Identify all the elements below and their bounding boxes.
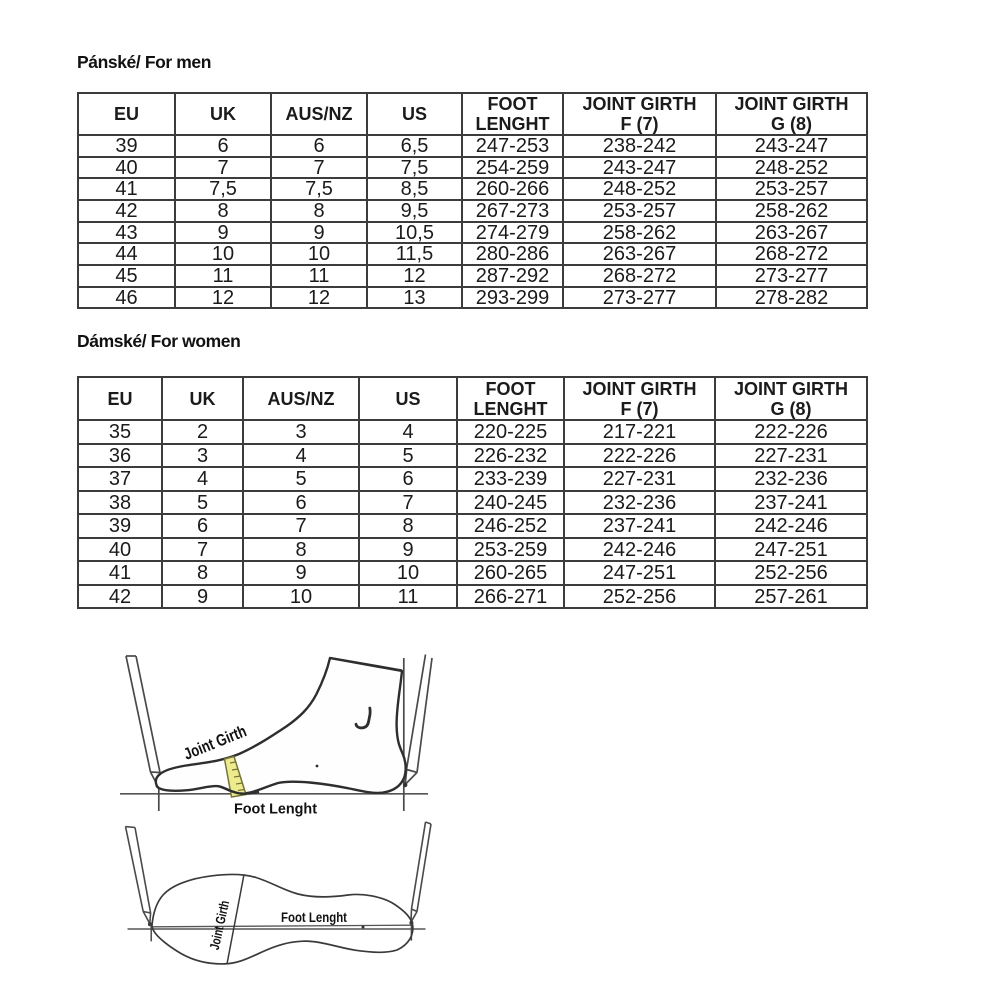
svg-text:Joint Girth: Joint Girth [207,899,232,951]
svg-text:Foot Lenght: Foot Lenght [281,910,347,925]
svg-text:Foot Lenght: Foot Lenght [234,802,317,818]
